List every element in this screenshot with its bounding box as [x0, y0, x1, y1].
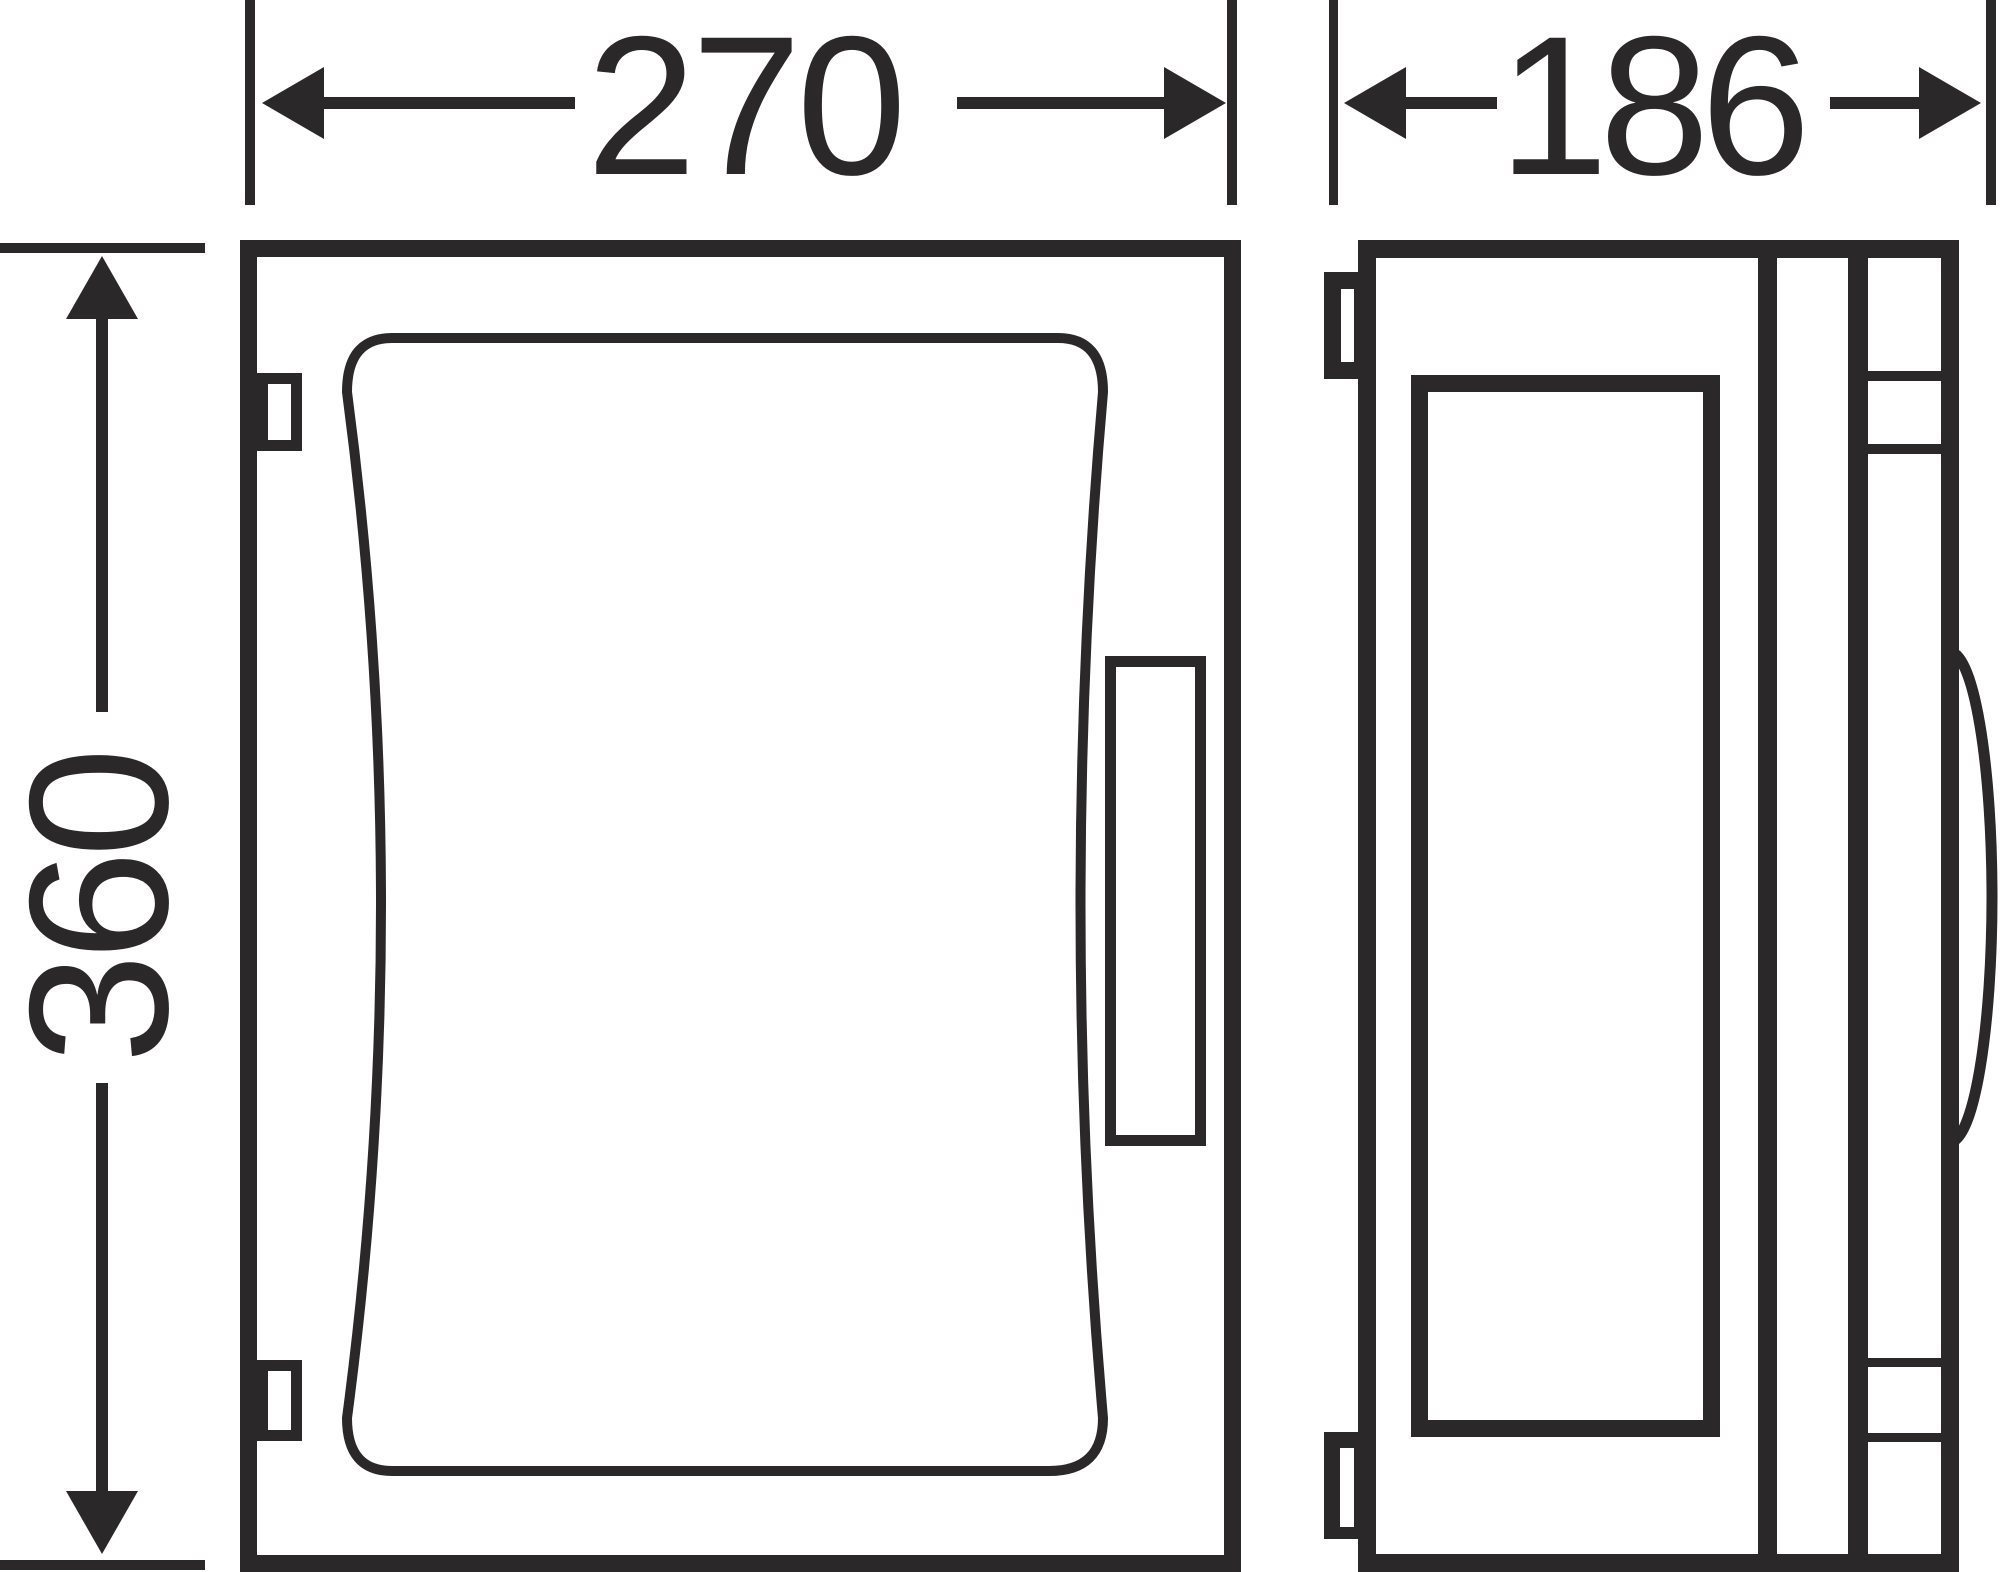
svg-text:270: 270	[586, 0, 901, 216]
svg-text:186: 186	[1498, 0, 1802, 216]
svg-text:360: 360	[0, 754, 209, 1063]
